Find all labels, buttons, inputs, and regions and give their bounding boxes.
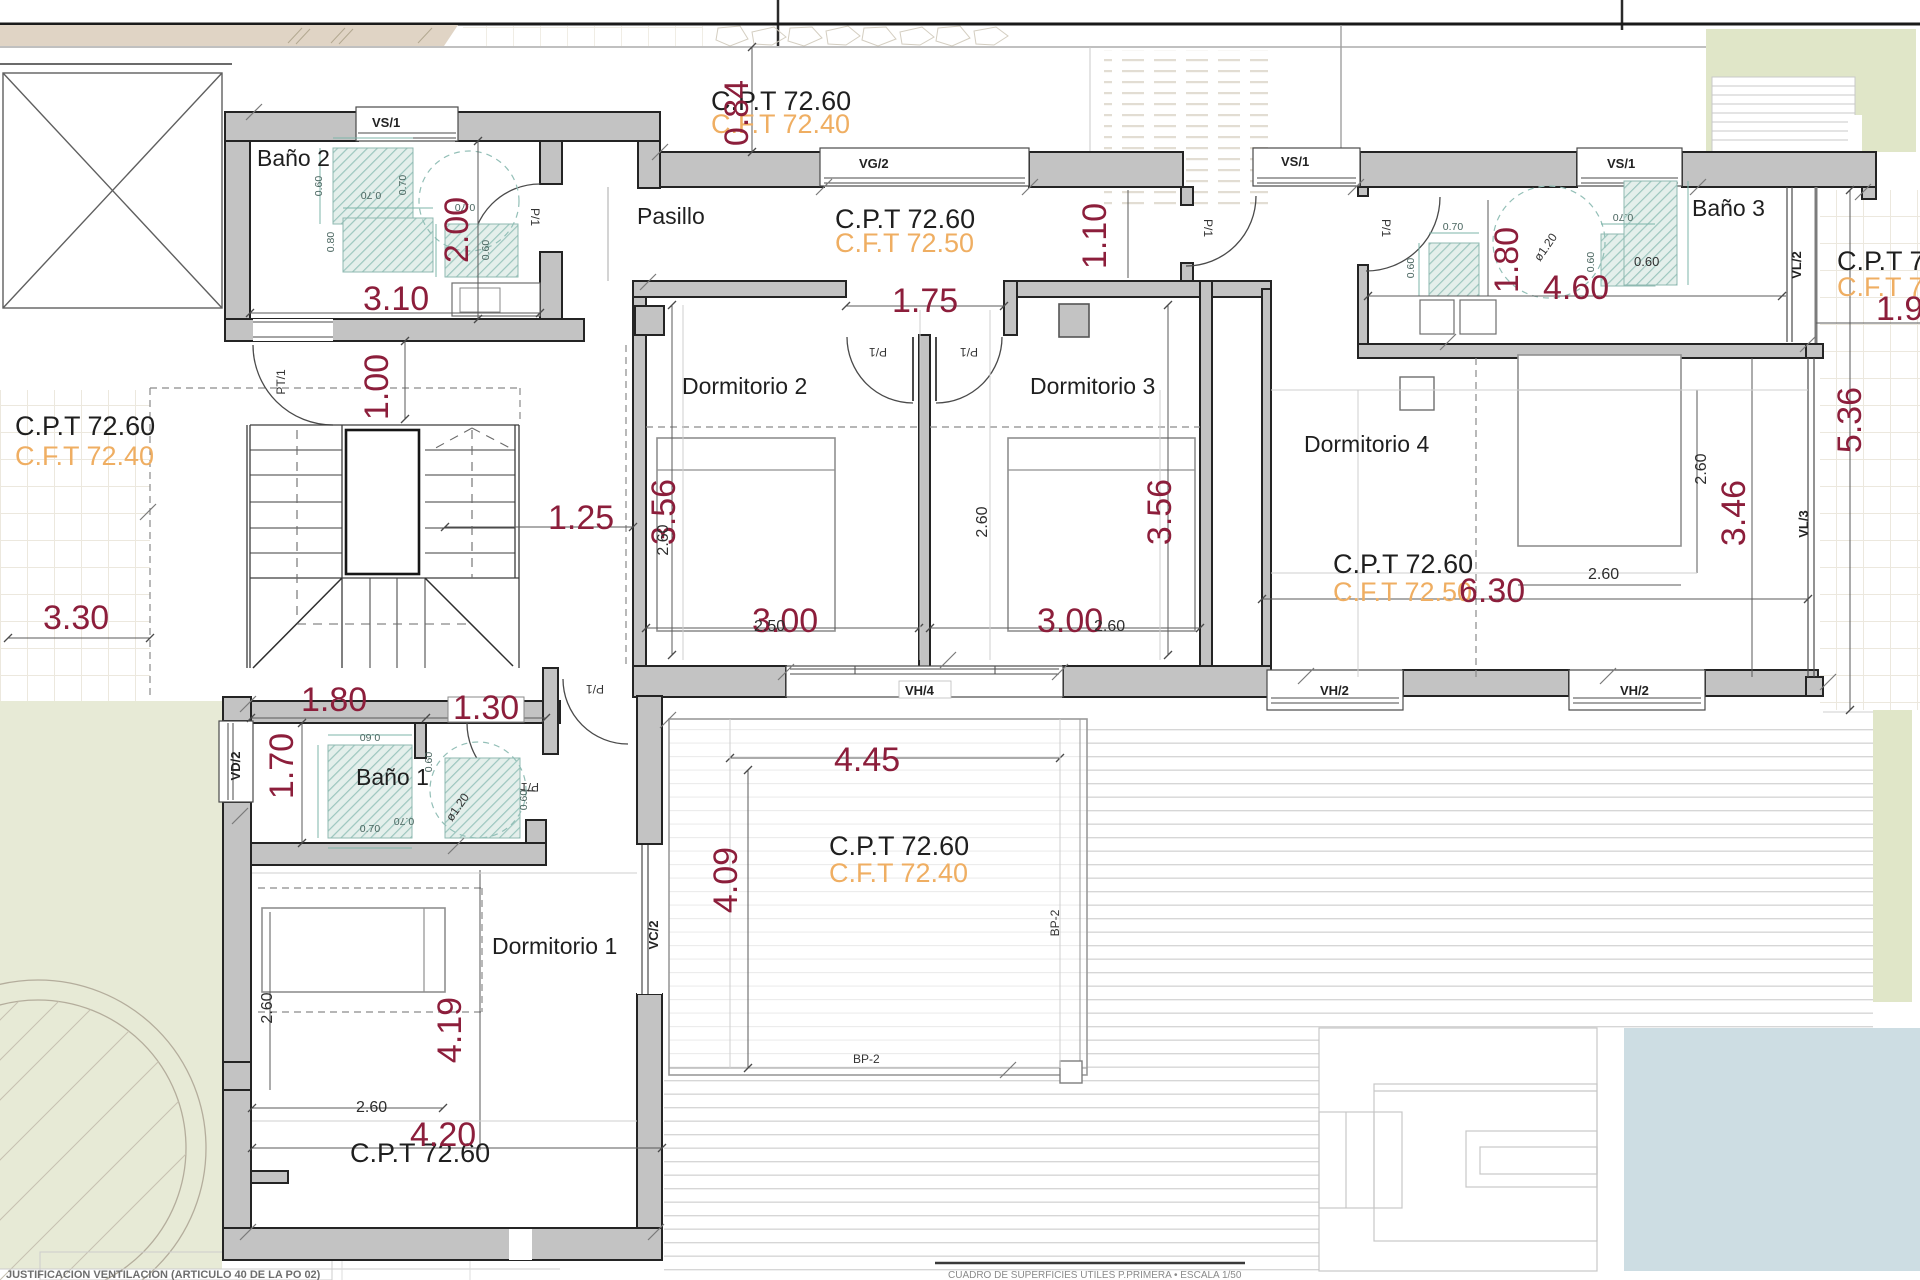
svg-text:4.20: 4.20 (410, 1116, 476, 1154)
svg-text:C.P.T 72.60: C.P.T 72.60 (15, 411, 155, 441)
svg-text:VG/2: VG/2 (859, 156, 889, 171)
svg-text:Baño 2: Baño 2 (257, 145, 330, 171)
svg-text:VH/2: VH/2 (1320, 683, 1349, 698)
svg-text:0.60: 0.60 (1405, 258, 1417, 279)
svg-text:1.80: 1.80 (301, 681, 367, 719)
svg-text:3.30: 3.30 (43, 599, 109, 637)
svg-text:4.09: 4.09 (707, 847, 745, 913)
svg-text:CUADRO DE SUPERFICIES UTILES P: CUADRO DE SUPERFICIES UTILES P.PRIMERA •… (948, 1270, 1242, 1280)
svg-text:4.19: 4.19 (431, 997, 469, 1063)
svg-text:0.60: 0.60 (518, 790, 530, 811)
svg-text:C.F.T 72.40: C.F.T 72.40 (15, 441, 154, 471)
svg-text:Baño 3: Baño 3 (1692, 195, 1765, 221)
svg-text:JUSTIFICACION VENTILACION (ART: JUSTIFICACION VENTILACION (ARTICULO 40 D… (6, 1269, 321, 1280)
svg-text:0.70: 0.70 (361, 189, 382, 201)
svg-text:1.95: 1.95 (1876, 290, 1920, 328)
svg-text:C.F.T 72.40: C.F.T 72.40 (829, 858, 968, 888)
svg-text:Dormitorio 4: Dormitorio 4 (1304, 431, 1429, 457)
svg-text:3.10: 3.10 (363, 280, 429, 318)
svg-text:0.60: 0.60 (313, 176, 325, 197)
svg-text:C.F.T 72.50: C.F.T 72.50 (835, 228, 974, 258)
svg-text:0.70: 0.70 (397, 175, 409, 196)
svg-text:VD/2: VD/2 (228, 752, 243, 781)
svg-text:0.84: 0.84 (718, 80, 756, 146)
svg-text:0.60: 0.60 (480, 240, 492, 261)
svg-text:P/1: P/1 (1379, 219, 1393, 237)
svg-text:2.60: 2.60 (1094, 618, 1125, 635)
svg-text:4.60: 4.60 (1543, 269, 1609, 307)
svg-text:6.30: 6.30 (1459, 572, 1525, 610)
svg-text:C.P.T 72.60: C.P.T 72.60 (829, 831, 969, 861)
svg-text:Dormitorio 2: Dormitorio 2 (682, 373, 807, 399)
svg-text:2.60: 2.60 (356, 1099, 387, 1116)
svg-text:2.60: 2.60 (1588, 566, 1619, 583)
svg-text:VL/2: VL/2 (1789, 251, 1804, 278)
svg-text:2.00: 2.00 (438, 197, 476, 263)
svg-text:1.75: 1.75 (892, 282, 958, 320)
svg-text:0.70: 0.70 (1443, 221, 1464, 233)
svg-text:VS/1: VS/1 (372, 115, 400, 130)
svg-text:1.80: 1.80 (1488, 227, 1526, 293)
svg-text:3.46: 3.46 (1715, 480, 1753, 546)
svg-text:0.60: 0.60 (360, 731, 381, 743)
svg-text:2.60: 2.60 (655, 524, 672, 555)
svg-text:P/1: P/1 (1201, 219, 1215, 237)
svg-text:0.80: 0.80 (325, 232, 337, 253)
svg-text:P/1: P/1 (528, 208, 542, 226)
svg-text:VH/2: VH/2 (1620, 683, 1649, 698)
svg-text:VS/1: VS/1 (1607, 156, 1635, 171)
svg-text:2.60: 2.60 (974, 506, 991, 537)
svg-text:0.60: 0.60 (1634, 254, 1659, 269)
svg-text:1.25: 1.25 (548, 499, 614, 537)
svg-text:P/1: P/1 (960, 345, 978, 359)
svg-text:C.F.T 72.50: C.F.T 72.50 (1333, 577, 1472, 607)
svg-text:0.70: 0.70 (394, 815, 415, 827)
svg-text:1.00: 1.00 (358, 354, 396, 420)
svg-text:BP-2: BP-2 (853, 1052, 880, 1066)
svg-text:P/1: P/1 (869, 345, 887, 359)
svg-text:Dormitorio 3: Dormitorio 3 (1030, 373, 1155, 399)
svg-text:1.10: 1.10 (1076, 203, 1114, 269)
svg-text:P/1: P/1 (586, 682, 604, 696)
svg-text:5.36: 5.36 (1831, 387, 1869, 453)
svg-text:4.45: 4.45 (834, 741, 900, 779)
svg-text:1.30: 1.30 (453, 689, 519, 727)
svg-text:BP-2: BP-2 (1048, 909, 1062, 936)
svg-text:1.70: 1.70 (263, 733, 301, 799)
svg-text:0.70: 0.70 (360, 823, 381, 835)
svg-text:2.60: 2.60 (259, 992, 276, 1023)
svg-text:VH/4: VH/4 (905, 683, 935, 698)
svg-text:VC/2: VC/2 (646, 921, 661, 950)
svg-text:Baño 1: Baño 1 (356, 764, 429, 790)
svg-text:Dormitorio 1: Dormitorio 1 (492, 933, 617, 959)
svg-text:2.50: 2.50 (754, 618, 785, 635)
svg-text:2.60: 2.60 (1693, 453, 1710, 484)
svg-text:PT/1: PT/1 (274, 369, 288, 395)
svg-text:Pasillo: Pasillo (637, 203, 705, 229)
svg-text:C.P.T 72.60: C.P.T 72.60 (1333, 549, 1473, 579)
svg-text:3.56: 3.56 (1141, 479, 1179, 545)
svg-text:0.70: 0.70 (1613, 211, 1634, 223)
svg-text:VS/1: VS/1 (1281, 154, 1309, 169)
svg-text:VL/3: VL/3 (1796, 510, 1811, 537)
